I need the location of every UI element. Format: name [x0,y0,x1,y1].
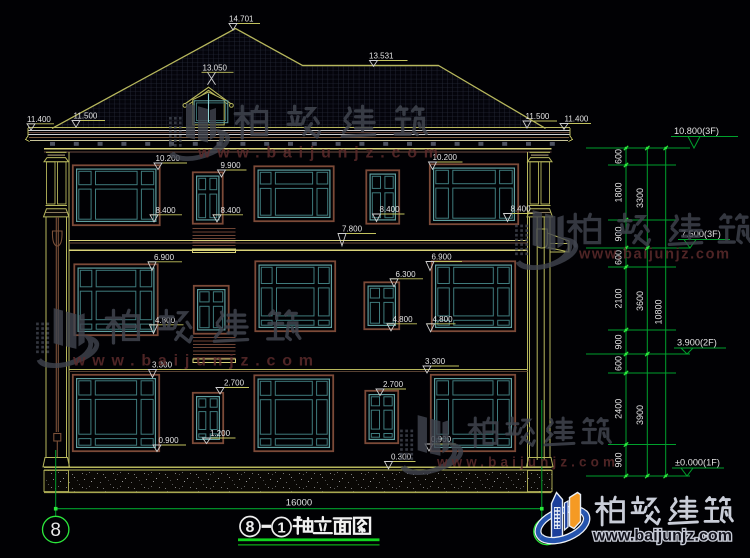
svg-text:11.400: 11.400 [565,115,589,124]
svg-text:4.800: 4.800 [393,315,414,324]
svg-text:8: 8 [50,520,61,541]
svg-text:16000: 16000 [286,498,312,509]
svg-text:900: 900 [614,452,624,467]
svg-text:2400: 2400 [614,399,624,419]
svg-text:14.701: 14.701 [229,15,254,24]
svg-text:10800: 10800 [654,299,664,324]
svg-text:11.500: 11.500 [526,112,550,121]
svg-text:11.500: 11.500 [74,112,98,121]
svg-text:1: 1 [277,520,285,537]
svg-text:8.400: 8.400 [511,205,532,214]
svg-text:3.900(2F): 3.900(2F) [677,338,717,348]
svg-text:2.700: 2.700 [224,379,245,388]
svg-text:900: 900 [614,334,624,349]
svg-text:13.050: 13.050 [203,63,228,72]
svg-text:2.700: 2.700 [383,380,404,389]
svg-text:3900: 3900 [635,405,645,425]
svg-text:1800: 1800 [614,182,624,202]
svg-text:3.300: 3.300 [425,357,446,366]
svg-text:9.900: 9.900 [221,161,242,170]
svg-text:13.531: 13.531 [369,52,394,61]
svg-text:6.900: 6.900 [154,253,175,262]
svg-text:3600: 3600 [635,291,645,311]
svg-text:600: 600 [614,149,624,164]
svg-text:0.900: 0.900 [159,436,180,445]
svg-text:8.400: 8.400 [380,205,401,214]
svg-text:8.400: 8.400 [156,206,177,215]
svg-text:4.800: 4.800 [433,315,454,324]
svg-text:6.300: 6.300 [396,270,417,279]
svg-text:7.800: 7.800 [342,225,363,234]
svg-text:8: 8 [246,519,255,536]
svg-text:8.400: 8.400 [221,206,242,215]
svg-text:±0.000(1F): ±0.000(1F) [675,458,720,468]
svg-text:6.900: 6.900 [432,253,453,262]
svg-text:www.baijunjz.com: www.baijunjz.com [592,528,732,545]
svg-text:11.400: 11.400 [27,115,51,124]
svg-text:1.200: 1.200 [210,429,231,438]
svg-text:3300: 3300 [635,188,645,208]
svg-text:10.800(3F): 10.800(3F) [674,126,719,136]
svg-text:2100: 2100 [614,288,624,308]
svg-text:600: 600 [614,356,624,371]
